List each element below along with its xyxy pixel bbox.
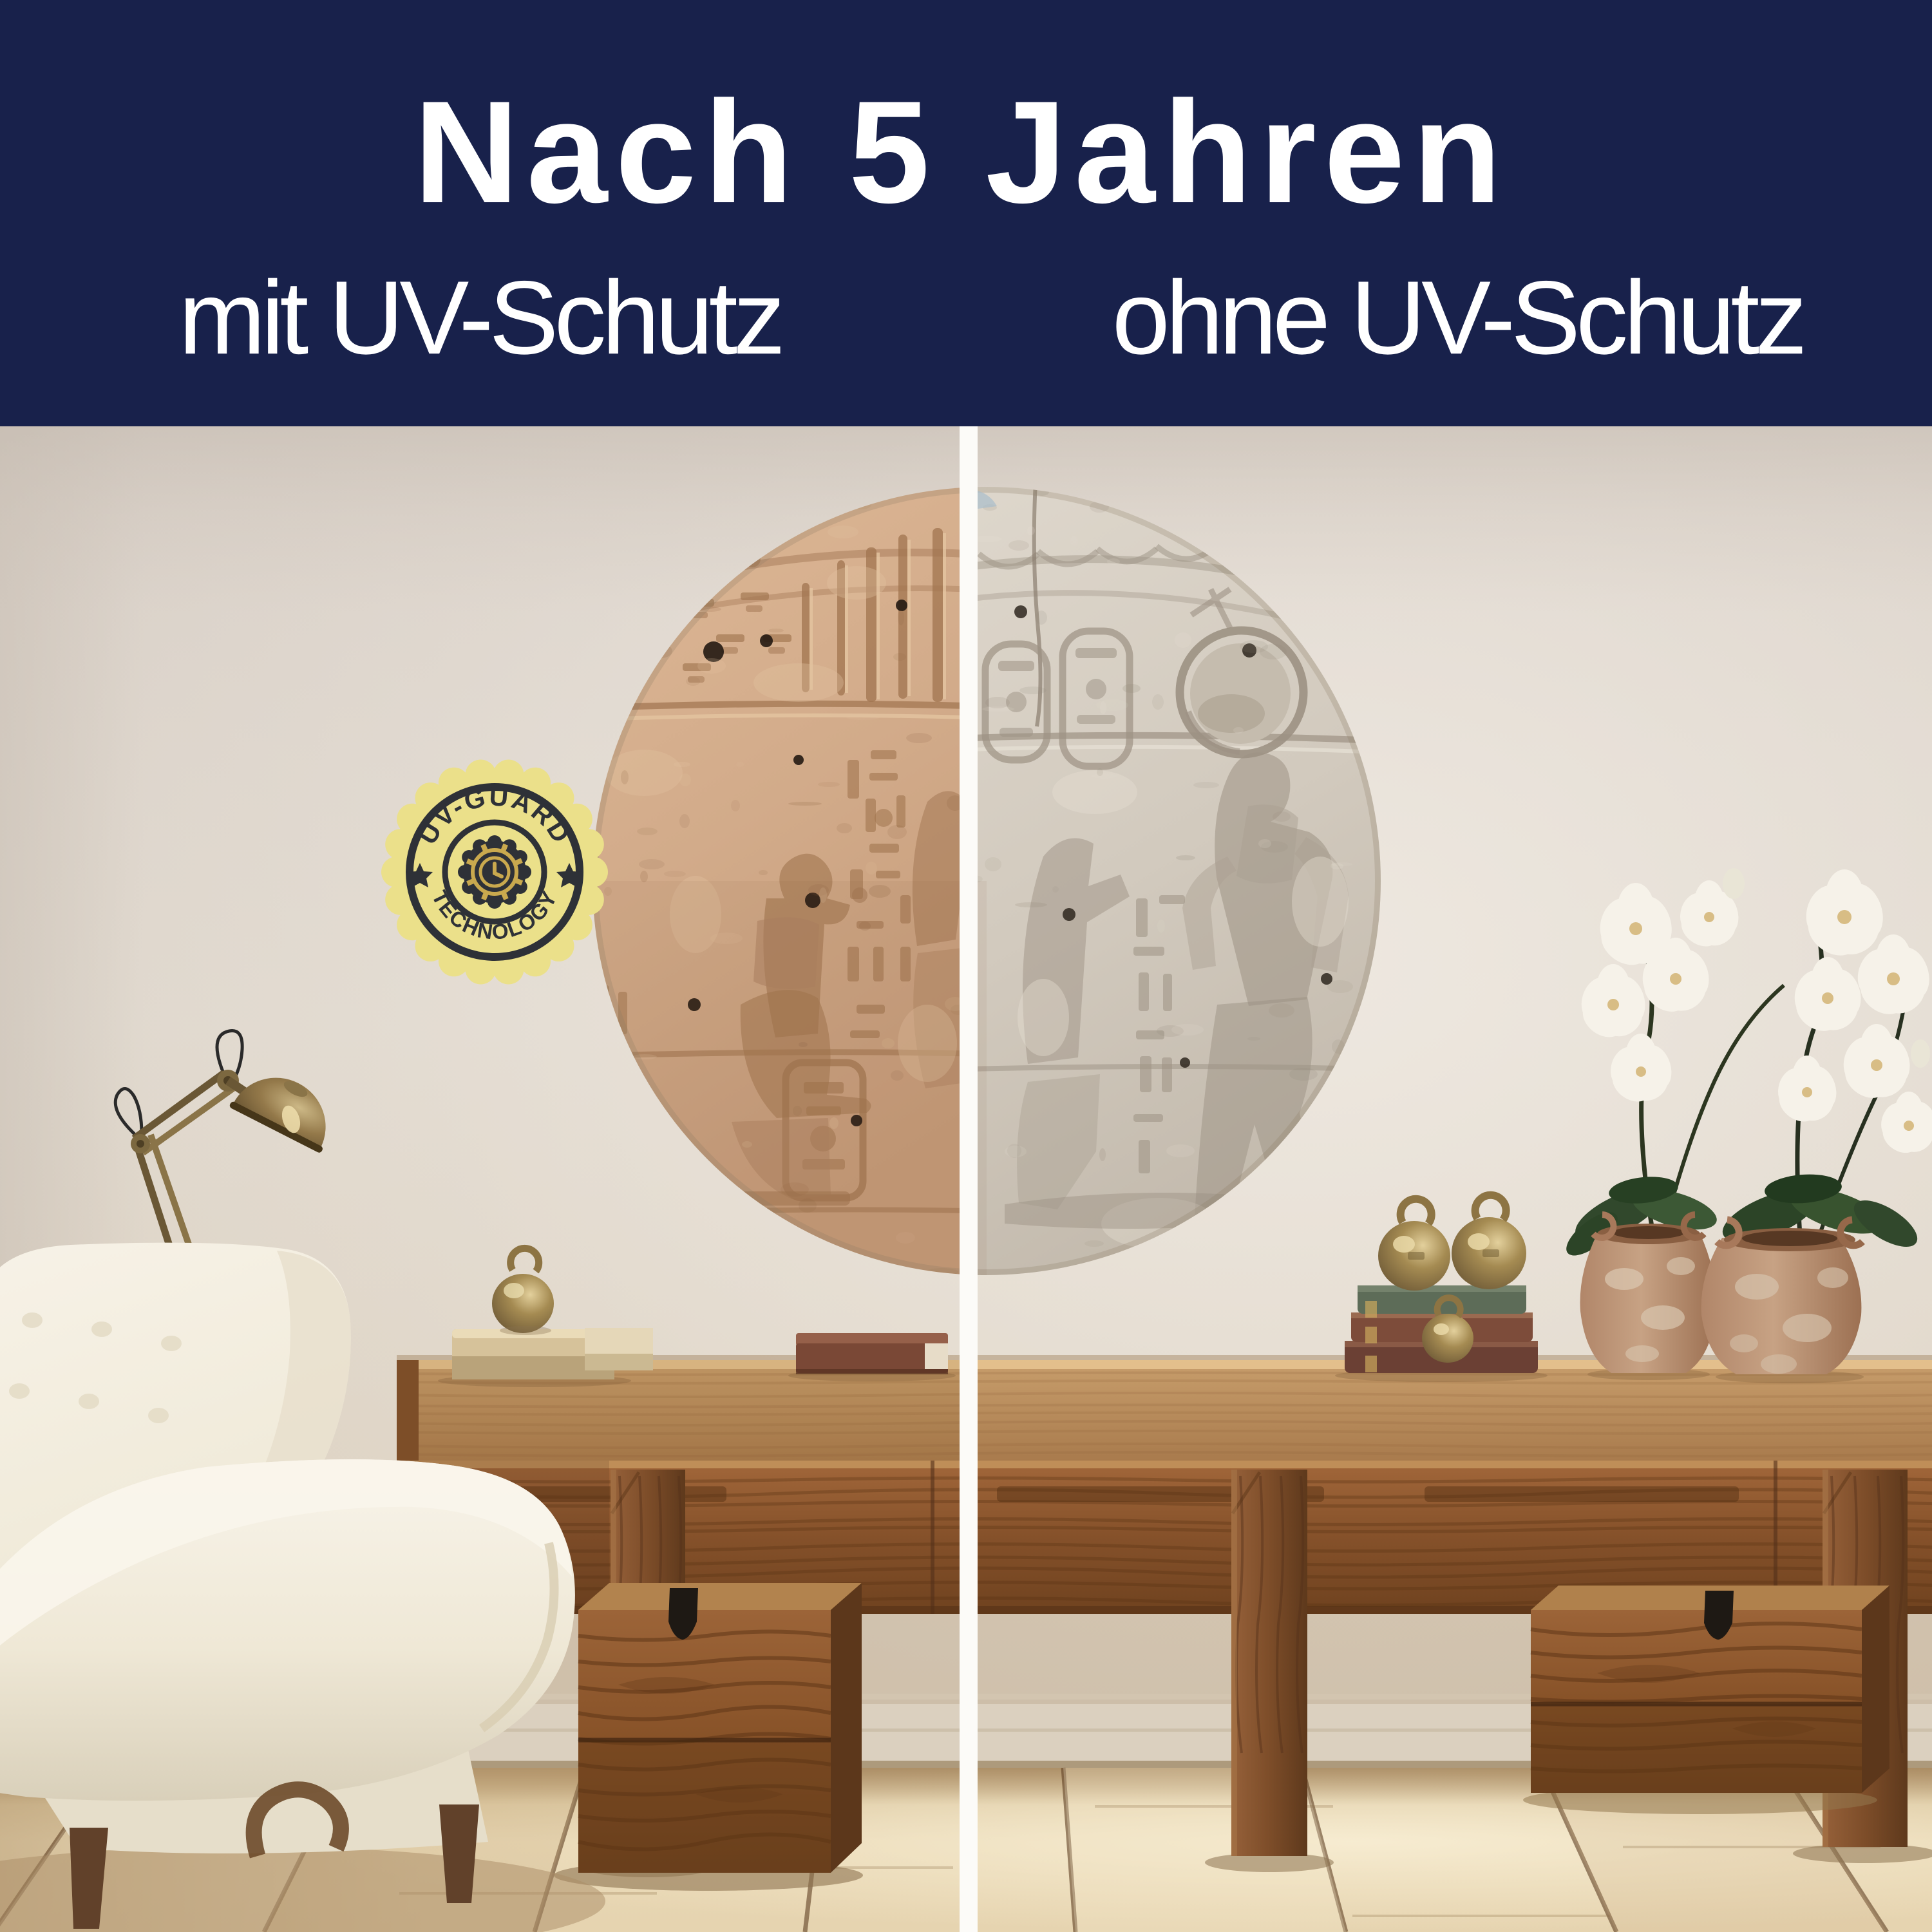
svg-text:mit UV-Schutz: mit UV-Schutz [178, 260, 781, 376]
svg-text:Nach 5 Jahren: Nach 5 Jahren [413, 70, 1509, 233]
svg-text:ohne UV-Schutz: ohne UV-Schutz [1112, 260, 1803, 376]
